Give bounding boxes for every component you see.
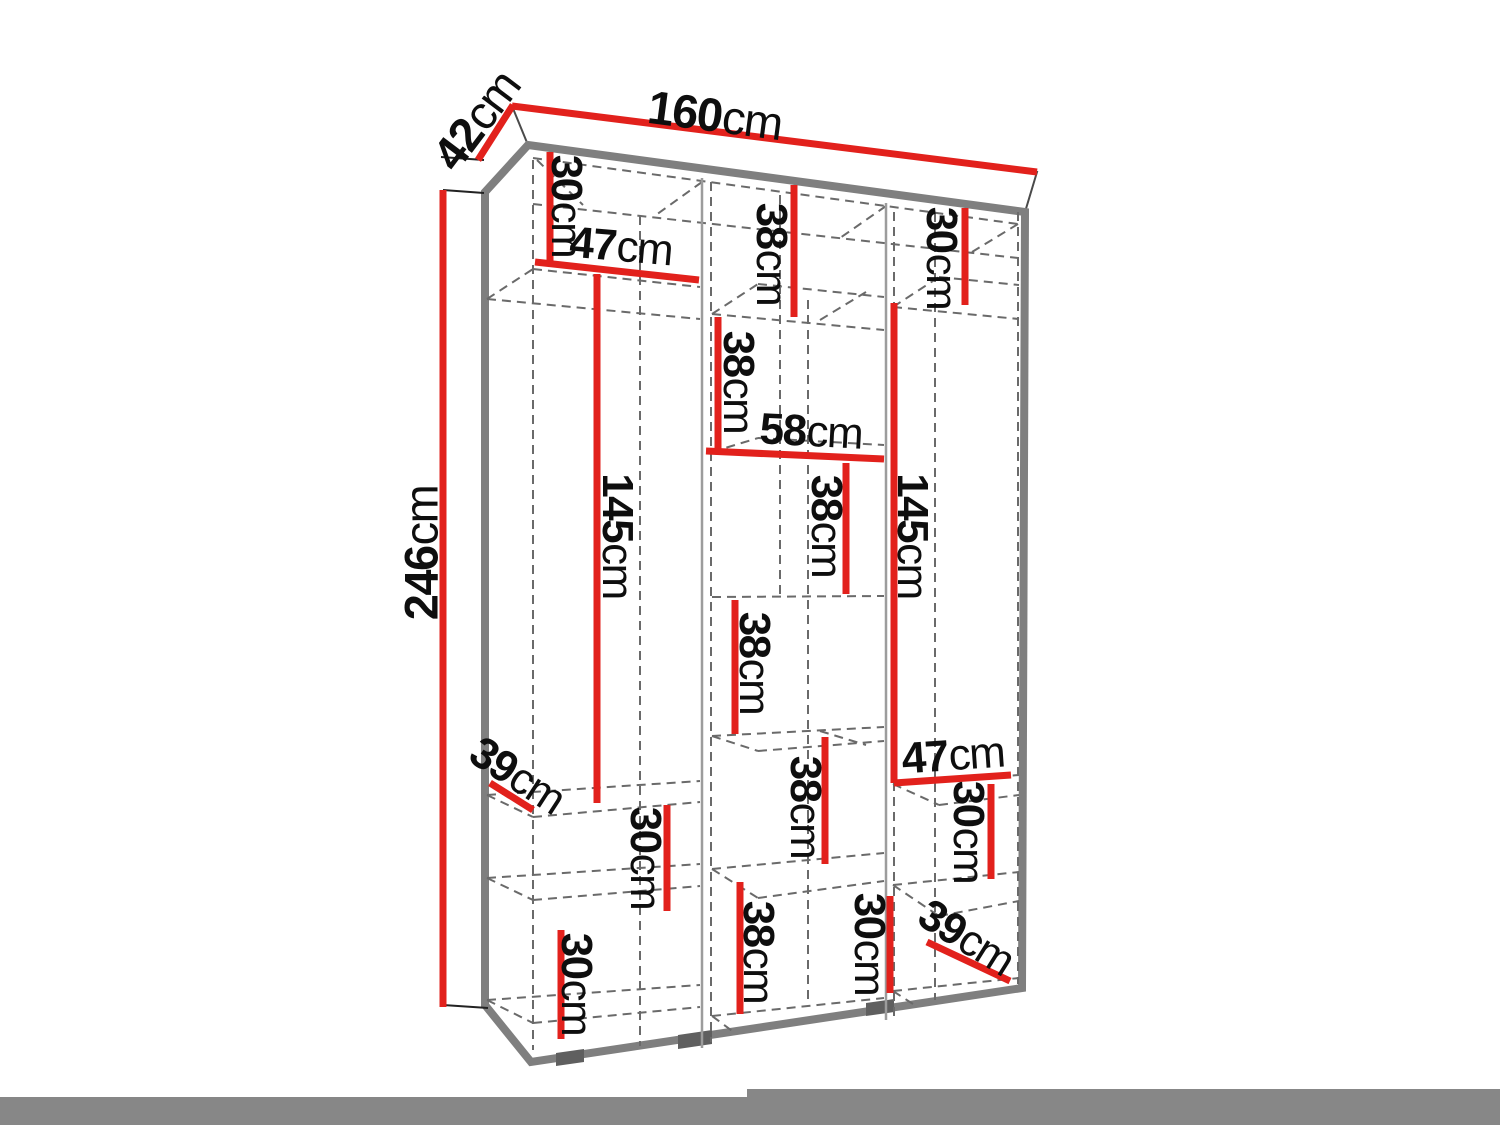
dim-left-width-47cm: 47cm [568, 221, 674, 274]
dim-mid-fourth-38cm: 38cm [732, 612, 776, 715]
dim-mid-width-58cm: 58cm [759, 407, 864, 456]
dim-left-hanging-145cm: 145cm [595, 473, 639, 599]
dim-right-bottom-30cm: 30cm [847, 893, 891, 996]
dim-right-width-47cm: 47cm [900, 730, 1005, 781]
dimension-ticks [441, 157, 488, 1008]
dim-mid-fifth-38cm: 38cm [783, 756, 827, 859]
dim-left-bottom-30cm: 30cm [554, 933, 598, 1036]
wardrobe-dimension-diagram: 160cm 42cm 246cm 30cm 47cm 38cm 30cm 38c… [0, 0, 1500, 1125]
dim-right-hanging-145cm: 145cm [890, 473, 934, 599]
dim-right-top-30cm: 30cm [919, 207, 963, 310]
dim-height-label: 246cm [398, 486, 445, 621]
dim-mid-bottom-38cm: 38cm [736, 901, 780, 1004]
dim-mid-third-38cm: 38cm [804, 475, 848, 578]
dim-left-lower-30cm: 30cm [623, 807, 667, 910]
floor-shadow [0, 1089, 1500, 1125]
dim-mid-top-38cm: 38cm [749, 203, 793, 306]
dim-mid-second-38cm: 38cm [716, 331, 760, 434]
dim-right-lower-30cm: 30cm [946, 781, 990, 884]
